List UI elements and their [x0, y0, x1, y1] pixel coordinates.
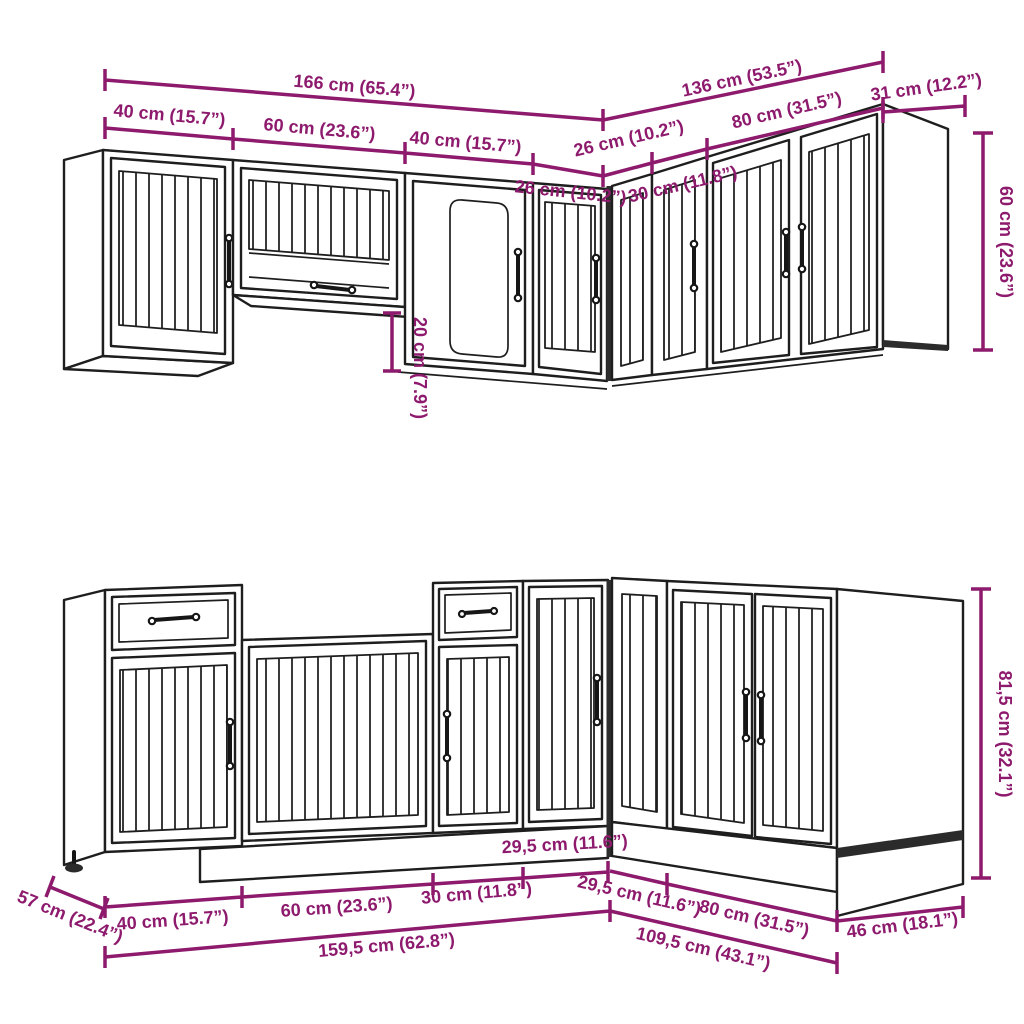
wall-cabinet7-handle-knob — [783, 271, 789, 277]
base-cabinet2-slat-panel — [257, 653, 418, 822]
base-cabinet3-handle-knob — [459, 611, 465, 617]
wall-cabinet4-handle-knob — [593, 255, 599, 261]
wall-end-panel — [883, 104, 948, 349]
base-cabinet5-slat-panel — [622, 594, 657, 812]
base-cabinet1-handle-knob — [149, 618, 155, 624]
base-cabinet3-handle-knob — [444, 711, 450, 717]
wall-cabinet1-handle-knob — [226, 235, 232, 241]
wall-cabinet7-handle-knob — [783, 229, 789, 235]
base-cabinet1-slat-panel — [120, 665, 227, 832]
wall-cabinet1-handle-knob — [226, 281, 232, 287]
base-cabinet1-foot — [65, 864, 83, 873]
dim-label-815cm: 81,5 cm (32.1”) — [995, 670, 1015, 797]
wall-cabinet2-handle-knob — [349, 287, 355, 293]
wall-cabinet6-handle-knob — [691, 241, 697, 247]
dim-label-60cm-height: 60 cm (23.6”) — [996, 186, 1016, 298]
base-cabinet6-left-slat-panel — [681, 602, 744, 823]
wall-cabinet7-handle-knob — [799, 266, 805, 272]
wall-cabinet5-slat-panel — [621, 193, 643, 366]
dim-label-20cm: 20 cm (7.9”) — [410, 317, 430, 419]
wall-cabinet2-slat-panel — [249, 180, 389, 260]
wall-cabinet3-handle-knob — [515, 249, 521, 255]
wall-left-side-panel — [64, 150, 103, 369]
wall-cabinet6-handle-knob — [691, 285, 697, 291]
wall-cabinet4-handle-knob — [593, 297, 599, 303]
base-left-side-panel — [64, 590, 105, 865]
base-end-panel — [837, 589, 963, 916]
wall-cabinet4-slat-panel — [545, 202, 595, 352]
base-cabinet4-slat-panel — [537, 598, 594, 810]
base-cabinet1-handle-knob — [193, 614, 199, 620]
base-cabinet6-handle-knob — [758, 692, 764, 698]
diagram-canvas: 166 cm (65.4”) 136 cm (53.5”) 40 cm (15.… — [0, 0, 1024, 1024]
wall-cabinet7-right-slat-panel — [809, 134, 869, 344]
base-cabinet3-slat-panel — [447, 657, 509, 815]
wall-cabinet3-handle-knob — [515, 295, 521, 301]
base-cabinet6-handle-knob — [743, 689, 749, 695]
base-cabinet6-handle-knob — [758, 738, 764, 744]
base-cabinet1-handle-knob — [227, 763, 233, 769]
wall-cabinet1-slat-panel — [119, 171, 217, 333]
base-cabinet4-handle-knob — [594, 675, 600, 681]
base-cabinet6-handle-knob — [743, 735, 749, 741]
wall-cabinet7-handle-knob — [799, 224, 805, 230]
base-cabinet4-handle-knob — [594, 719, 600, 725]
base-cabinet3-handle-knob — [491, 608, 497, 614]
wall-cabinet7-left-slat-panel — [721, 160, 781, 352]
base-cabinet6-right-slat-panel — [763, 606, 823, 831]
base-cabinet1-handle-knob — [227, 719, 233, 725]
cabinet-dimension-diagram: 166 cm (65.4”) 136 cm (53.5”) 40 cm (15.… — [0, 0, 1024, 1024]
wall-cabinet2-handle-knob — [311, 282, 317, 288]
wall-cabinet6-slat-panel — [664, 180, 695, 360]
base-cabinet3-handle-knob — [444, 755, 450, 761]
base-cabinet3-drawer-handle — [464, 611, 492, 613]
